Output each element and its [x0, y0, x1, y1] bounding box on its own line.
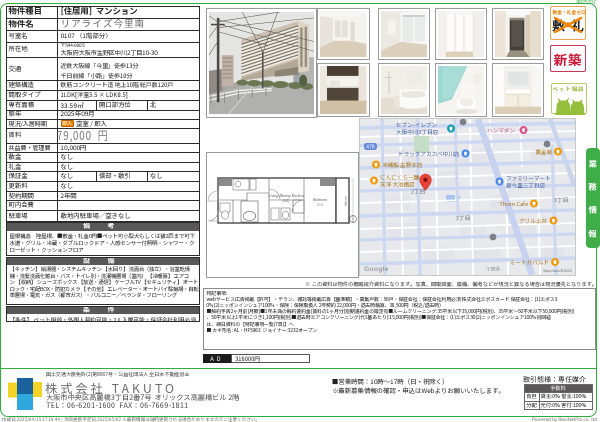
svg-text:(5.5): (5.5): [316, 202, 323, 206]
svg-text:Living Dining Kitchen: Living Dining Kitchen: [267, 193, 304, 198]
svg-text:2丁目: 2丁目: [411, 188, 425, 196]
svg-text:(8.5): (8.5): [282, 199, 290, 203]
svg-text:グリル土井: グリル土井: [519, 217, 547, 225]
svg-text:黄金城: 黄金城: [535, 148, 552, 156]
svg-text:ハンマダン: ハンマダン: [487, 127, 515, 135]
svg-text:ミートかバルド: ミートかバルド: [509, 259, 549, 267]
svg-text:ドラッグアカカベ中川店: ドラッグアカカベ中川店: [398, 150, 460, 158]
svg-text:Map data ©2025: Map data ©2025: [543, 268, 572, 274]
svg-text:479: 479: [366, 144, 375, 151]
svg-text:大阪中川3丁目店: 大阪中川3丁目店: [395, 128, 439, 136]
svg-text:新今里三丁目店: 新今里三丁目店: [506, 182, 546, 190]
svg-text:沖縄船 生野本店: 沖縄船 生野本店: [382, 161, 423, 169]
svg-text:3丁目: 3丁目: [554, 196, 568, 204]
svg-text:Bedroom: Bedroom: [313, 198, 327, 202]
svg-text:Thorn Cafe: Thorn Cafe: [499, 200, 528, 208]
svg-text:Balcony: Balcony: [343, 195, 347, 206]
svg-text:Google: Google: [364, 266, 389, 273]
svg-text:3丁目: 3丁目: [456, 214, 470, 222]
svg-text:天洋 大池橋店: 天洋 大池橋店: [380, 181, 415, 189]
svg-text:千間通: 千間通: [485, 265, 500, 273]
